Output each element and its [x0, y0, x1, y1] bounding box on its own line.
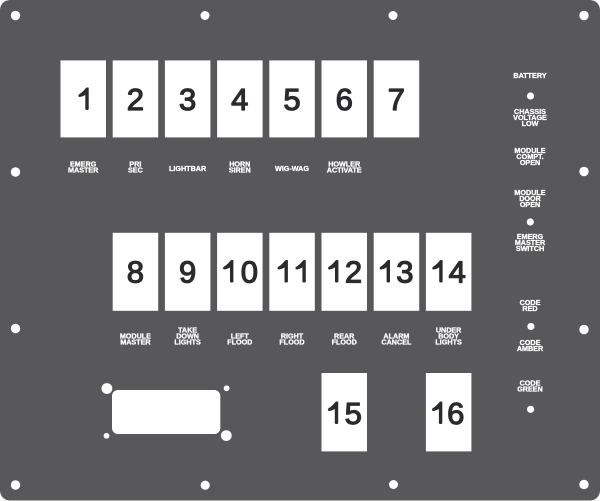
svg-text:CODEGREEN: CODEGREEN	[517, 379, 543, 394]
svg-text:REARFLOOD: REARFLOOD	[332, 332, 357, 347]
svg-text:BATTERY: BATTERY	[513, 71, 546, 80]
svg-text:0: 0	[241, 255, 258, 290]
svg-text:MODULEMASTER: MODULEMASTER	[120, 332, 152, 347]
svg-text:2: 2	[127, 82, 144, 117]
svg-text:PRISEC: PRISEC	[128, 160, 143, 175]
svg-text:4: 4	[449, 255, 466, 290]
svg-text:2: 2	[345, 255, 362, 290]
svg-text:CODEAMBER: CODEAMBER	[517, 338, 544, 353]
svg-text:EMERGMASTER: EMERGMASTER	[68, 160, 99, 175]
svg-text:4: 4	[231, 82, 248, 117]
svg-text:6: 6	[447, 396, 464, 431]
svg-text:CODERED: CODERED	[520, 298, 541, 313]
svg-text:UNDERBODYLIGHTS: UNDERBODYLIGHTS	[435, 326, 462, 347]
svg-text:WIG-WAG: WIG-WAG	[275, 164, 309, 173]
svg-text:5: 5	[283, 82, 300, 117]
svg-text:HOWLERACTIVATE: HOWLERACTIVATE	[327, 160, 362, 175]
svg-text:LIGHTBAR: LIGHTBAR	[169, 164, 207, 173]
svg-text:3: 3	[396, 255, 413, 290]
svg-text:3: 3	[179, 82, 196, 117]
svg-text:6: 6	[336, 82, 353, 117]
svg-text:TAKEDOWNLIGHTS: TAKEDOWNLIGHTS	[174, 326, 201, 347]
svg-text:EMERGMASTERSWITCH: EMERGMASTERSWITCH	[515, 232, 546, 253]
svg-text:9: 9	[179, 255, 196, 290]
svg-text:HORNSIREN: HORNSIREN	[229, 160, 251, 175]
svg-text:ALARMCANCEL: ALARMCANCEL	[381, 332, 412, 347]
svg-text:7: 7	[388, 82, 405, 117]
svg-text:RIGHTFLOOD: RIGHTFLOOD	[279, 332, 304, 347]
svg-text:LEFTFLOOD: LEFTFLOOD	[227, 332, 252, 347]
svg-text:5: 5	[345, 396, 362, 431]
svg-text:8: 8	[127, 255, 144, 290]
